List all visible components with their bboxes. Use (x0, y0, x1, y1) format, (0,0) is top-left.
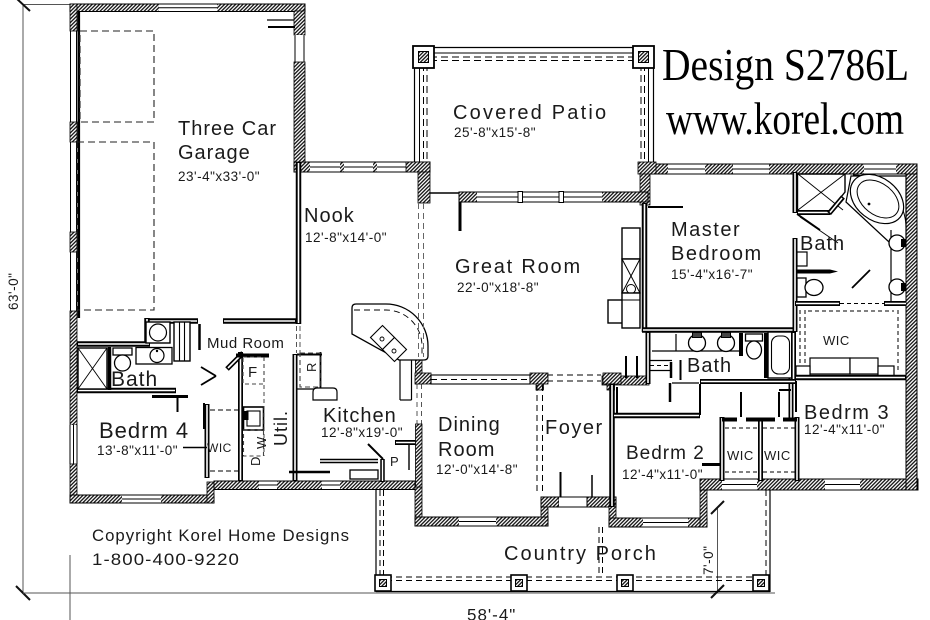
svg-text:12'-0"x14'-8": 12'-0"x14'-8" (436, 462, 518, 477)
svg-text:Great Room: Great Room (455, 256, 582, 278)
svg-text:Covered Patio: Covered Patio (453, 102, 608, 124)
svg-text:R: R (304, 362, 319, 372)
svg-text:Bath: Bath (800, 233, 845, 255)
svg-text:F: F (248, 364, 258, 381)
svg-text:www.korel.com: www.korel.com (666, 93, 904, 144)
svg-text:Garage: Garage (178, 142, 251, 164)
svg-text:1-800-400-9220: 1-800-400-9220 (92, 550, 240, 569)
svg-text:12'-8"x19'-0": 12'-8"x19'-0" (321, 425, 403, 440)
svg-text:W: W (254, 436, 269, 449)
svg-text:P: P (390, 454, 399, 469)
svg-text:Foyer: Foyer (545, 417, 604, 439)
svg-text:Three Car: Three Car (178, 118, 277, 140)
svg-text:12'-4"x11'-0": 12'-4"x11'-0" (804, 422, 885, 437)
svg-text:7'-0": 7'-0" (701, 546, 716, 575)
svg-text:Country Porch: Country Porch (504, 543, 658, 565)
svg-text:Bath: Bath (687, 355, 732, 377)
svg-text:Bedrm 4: Bedrm 4 (99, 418, 189, 443)
svg-text:D: D (248, 456, 263, 466)
svg-text:Kitchen: Kitchen (323, 405, 397, 427)
svg-text:Bedrm 3: Bedrm 3 (804, 402, 890, 424)
svg-text:Bedroom: Bedroom (671, 243, 763, 265)
svg-text:WIC: WIC (207, 441, 232, 455)
svg-text:Bath: Bath (111, 368, 158, 391)
svg-text:23'-4"x33'-0": 23'-4"x33'-0" (178, 169, 260, 184)
svg-text:58'-4": 58'-4" (467, 606, 516, 620)
svg-text:63'-0": 63'-0" (6, 273, 21, 310)
svg-text:Nook: Nook (304, 205, 355, 227)
svg-text:Master: Master (671, 219, 741, 241)
svg-text:Mud Room: Mud Room (207, 335, 284, 352)
svg-text:15'-4"x16'-7": 15'-4"x16'-7" (671, 267, 753, 282)
svg-text:WIC: WIC (727, 448, 754, 463)
svg-text:Bedrm 2: Bedrm 2 (626, 443, 705, 464)
svg-text:22'-0"x18'-8": 22'-0"x18'-8" (457, 280, 539, 295)
svg-text:25'-8"x15'-8": 25'-8"x15'-8" (454, 125, 536, 140)
svg-text:Util.: Util. (271, 410, 291, 446)
svg-text:WIC: WIC (764, 448, 791, 463)
svg-text:WIC: WIC (823, 333, 850, 348)
svg-text:Copyright Korel Home Designs: Copyright Korel Home Designs (92, 526, 350, 545)
svg-text:12'-4"x11'-0": 12'-4"x11'-0" (622, 467, 703, 482)
svg-text:Design S2786L: Design S2786L (662, 39, 909, 90)
svg-text:Room: Room (438, 439, 495, 461)
svg-text:13'-8"x11'-0": 13'-8"x11'-0" (97, 443, 178, 458)
svg-text:12'-8"x14'-0": 12'-8"x14'-0" (305, 230, 387, 245)
svg-text:Dining: Dining (438, 414, 501, 436)
